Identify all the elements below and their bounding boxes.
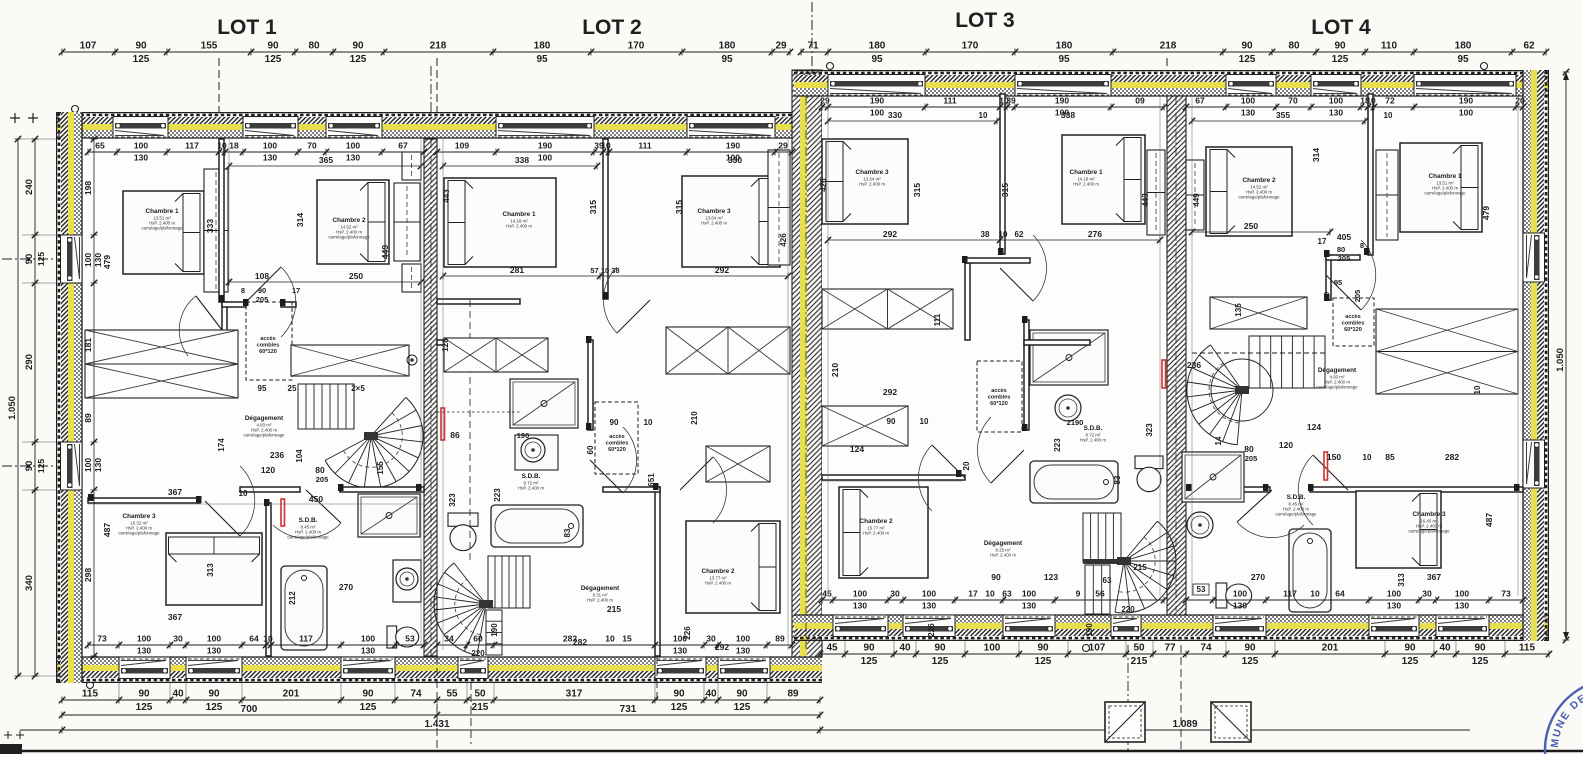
- svg-text:125: 125: [1332, 54, 1349, 65]
- svg-text:125: 125: [265, 54, 282, 65]
- svg-text:215: 215: [607, 604, 621, 614]
- svg-text:30: 30: [890, 589, 900, 599]
- svg-text:215: 215: [1131, 656, 1148, 667]
- svg-text:17: 17: [292, 286, 300, 295]
- svg-text:62: 62: [1523, 41, 1535, 52]
- svg-text:77: 77: [1164, 643, 1176, 654]
- svg-text:236: 236: [1187, 360, 1201, 370]
- svg-text:130: 130: [1241, 108, 1255, 118]
- svg-text:2×5: 2×5: [351, 384, 365, 393]
- svg-text:130: 130: [1022, 601, 1036, 611]
- svg-text:Chambre 2: Chambre 2: [701, 568, 734, 575]
- svg-text:130: 130: [1233, 601, 1247, 611]
- svg-text:90: 90: [1037, 643, 1049, 654]
- svg-text:30: 30: [706, 634, 716, 644]
- svg-text:carrelage/plafonnage: carrelage/plafonnage: [1238, 195, 1280, 200]
- svg-text:10: 10: [1473, 385, 1482, 394]
- svg-text:100: 100: [1241, 96, 1255, 106]
- svg-text:700: 700: [241, 704, 258, 715]
- svg-text:65: 65: [95, 141, 105, 151]
- svg-text:95: 95: [258, 384, 267, 393]
- svg-text:carrelage/plafonnage: carrelage/plafonnage: [1424, 191, 1466, 196]
- svg-text:carrelage/plafonnage: carrelage/plafonnage: [141, 226, 183, 231]
- svg-text:100: 100: [207, 634, 221, 644]
- svg-text:365: 365: [319, 155, 333, 165]
- svg-text:443: 443: [442, 189, 451, 203]
- svg-text:95: 95: [721, 54, 733, 65]
- svg-text:10: 10: [239, 489, 248, 498]
- svg-text:LOT 1: LOT 1: [217, 16, 277, 39]
- svg-text:HsP. 2.400 m: HsP. 2.400 m: [1080, 438, 1106, 443]
- svg-text:55: 55: [446, 689, 458, 700]
- svg-text:220: 220: [471, 649, 485, 658]
- svg-text:Chambre 3: Chambre 3: [122, 513, 155, 520]
- svg-text:125: 125: [1402, 656, 1419, 667]
- svg-text:80: 80: [315, 465, 325, 475]
- svg-text:17: 17: [968, 589, 978, 599]
- svg-text:50: 50: [474, 689, 486, 700]
- svg-text:90: 90: [863, 643, 875, 654]
- svg-text:1.089: 1.089: [1172, 719, 1197, 730]
- svg-text:108: 108: [255, 271, 269, 281]
- svg-text:130: 130: [1455, 601, 1469, 611]
- svg-text:130: 130: [673, 646, 687, 656]
- svg-text:210: 210: [690, 411, 699, 425]
- svg-text:90: 90: [1404, 643, 1416, 654]
- svg-text:S.D.B.: S.D.B.: [522, 473, 541, 480]
- svg-text:accès: accès: [260, 336, 276, 342]
- svg-text:carrelage/plafonnage: carrelage/plafonnage: [1275, 512, 1317, 517]
- svg-text:80: 80: [1288, 41, 1300, 52]
- svg-text:130: 130: [346, 153, 360, 163]
- svg-text:181: 181: [83, 338, 93, 352]
- svg-text:95: 95: [536, 54, 548, 65]
- svg-text:180: 180: [719, 41, 736, 52]
- svg-text:367: 367: [168, 487, 182, 497]
- svg-text:10: 10: [985, 589, 995, 599]
- svg-text:18: 18: [229, 141, 239, 151]
- svg-text:HsP. 2.400 m: HsP. 2.400 m: [518, 486, 544, 491]
- svg-text:367: 367: [168, 612, 182, 622]
- svg-text:190: 190: [1459, 96, 1473, 106]
- svg-text:80: 80: [1244, 444, 1254, 454]
- svg-text:125: 125: [36, 459, 46, 473]
- svg-text:215: 215: [472, 702, 489, 713]
- svg-text:117: 117: [185, 141, 199, 151]
- svg-text:72: 72: [1385, 96, 1395, 106]
- svg-text:100: 100: [361, 634, 375, 644]
- svg-text:90: 90: [887, 417, 896, 426]
- svg-text:63: 63: [1103, 576, 1112, 585]
- svg-text:30: 30: [173, 634, 183, 644]
- svg-text:25: 25: [288, 384, 297, 393]
- svg-text:95: 95: [871, 54, 883, 65]
- svg-text:210: 210: [830, 363, 840, 377]
- svg-text:combles: combles: [257, 343, 280, 349]
- svg-text:100: 100: [346, 141, 360, 151]
- svg-text:Chambre 1: Chambre 1: [1069, 169, 1102, 176]
- svg-text:150: 150: [1327, 452, 1341, 462]
- svg-text:270: 270: [339, 582, 353, 592]
- svg-text:180: 180: [1455, 41, 1472, 52]
- svg-text:HsP. 2.400 m: HsP. 2.400 m: [705, 581, 731, 586]
- svg-text:45: 45: [822, 589, 832, 599]
- svg-text:109: 109: [455, 141, 469, 151]
- svg-text:S.D.B.: S.D.B.: [299, 517, 318, 524]
- svg-text:combles: combles: [1342, 321, 1365, 327]
- svg-text:190: 190: [726, 141, 740, 151]
- svg-text:124: 124: [1307, 422, 1321, 432]
- svg-text:90: 90: [362, 689, 374, 700]
- svg-text:314: 314: [1311, 148, 1321, 162]
- svg-text:20: 20: [962, 461, 971, 470]
- svg-text:282: 282: [563, 634, 577, 644]
- svg-text:426: 426: [779, 233, 788, 247]
- svg-text:90: 90: [135, 41, 147, 52]
- svg-text:carrelage/plafonnage: carrelage/plafonnage: [1408, 529, 1450, 534]
- svg-text:95: 95: [1334, 278, 1342, 287]
- svg-text:Chambre 2: Chambre 2: [859, 518, 892, 525]
- svg-text:10: 10: [1363, 453, 1372, 462]
- svg-text:90: 90: [673, 689, 685, 700]
- svg-text:315: 315: [588, 200, 598, 214]
- svg-text:130: 130: [853, 601, 867, 611]
- svg-text:120: 120: [1279, 440, 1293, 450]
- svg-text:10: 10: [601, 141, 611, 151]
- svg-text:100: 100: [922, 589, 936, 599]
- svg-text:60*120: 60*120: [259, 349, 277, 355]
- svg-text:479: 479: [102, 255, 112, 269]
- svg-text:405: 405: [1337, 232, 1351, 242]
- svg-text:90: 90: [138, 689, 150, 700]
- svg-text:60*120: 60*120: [608, 447, 626, 453]
- svg-text:223: 223: [493, 488, 502, 502]
- svg-text:155: 155: [201, 41, 218, 52]
- svg-text:180: 180: [1056, 41, 1073, 52]
- svg-text:170: 170: [628, 41, 645, 52]
- svg-text:Chambre 1: Chambre 1: [502, 211, 535, 218]
- svg-text:29: 29: [820, 96, 830, 106]
- svg-text:317: 317: [566, 689, 583, 700]
- svg-text:80: 80: [1337, 245, 1345, 254]
- svg-text:S.D.B.: S.D.B.: [1084, 425, 1103, 432]
- svg-text:100: 100: [870, 108, 884, 118]
- svg-text:40: 40: [705, 689, 717, 700]
- svg-text:100: 100: [1022, 589, 1036, 599]
- svg-text:17: 17: [1318, 237, 1327, 246]
- svg-text:731: 731: [620, 704, 637, 715]
- svg-text:89: 89: [775, 634, 785, 644]
- svg-text:90: 90: [1334, 41, 1346, 52]
- svg-text:Chambre 3: Chambre 3: [1412, 511, 1445, 518]
- svg-text:190: 190: [517, 431, 530, 440]
- svg-text:155: 155: [376, 461, 385, 475]
- svg-text:487: 487: [1484, 513, 1494, 527]
- svg-text:Dégagement: Dégagement: [984, 540, 1023, 547]
- svg-text:60: 60: [586, 445, 595, 454]
- svg-text:218: 218: [1160, 41, 1177, 52]
- svg-text:226: 226: [927, 623, 936, 637]
- svg-text:111: 111: [943, 96, 957, 106]
- svg-text:53: 53: [405, 634, 415, 644]
- svg-text:201: 201: [1322, 643, 1339, 654]
- svg-text:90: 90: [1244, 643, 1256, 654]
- svg-text:73: 73: [1501, 589, 1511, 599]
- svg-text:10: 10: [920, 417, 929, 426]
- svg-text:combles: combles: [606, 441, 629, 447]
- svg-text:67: 67: [398, 141, 408, 151]
- svg-text:333: 333: [205, 219, 215, 233]
- svg-text:130: 130: [207, 646, 221, 656]
- svg-text:443: 443: [1141, 193, 1150, 207]
- svg-text:330: 330: [728, 155, 742, 165]
- svg-text:10: 10: [1366, 96, 1376, 106]
- svg-text:120: 120: [261, 465, 275, 475]
- svg-text:60*120: 60*120: [1344, 327, 1362, 333]
- svg-text:63: 63: [1002, 589, 1012, 599]
- svg-text:40: 40: [172, 689, 184, 700]
- svg-text:190: 190: [870, 96, 884, 106]
- svg-text:125: 125: [350, 54, 367, 65]
- svg-text:40: 40: [1439, 643, 1451, 654]
- svg-text:10: 10: [1384, 111, 1393, 120]
- svg-text:292: 292: [883, 387, 897, 397]
- svg-text:338: 338: [515, 155, 529, 165]
- svg-text:111: 111: [638, 141, 652, 151]
- svg-text:100: 100: [853, 589, 867, 599]
- svg-text:250: 250: [1244, 221, 1258, 231]
- svg-text:170: 170: [962, 41, 979, 52]
- svg-text:85: 85: [1385, 452, 1395, 462]
- svg-text:38: 38: [981, 230, 990, 239]
- svg-text:117: 117: [299, 634, 313, 644]
- svg-text:282: 282: [1445, 452, 1459, 462]
- svg-text:205: 205: [1245, 454, 1258, 463]
- svg-text:carrelage/plafonnage: carrelage/plafonnage: [243, 433, 285, 438]
- svg-text:190: 190: [1055, 96, 1069, 106]
- svg-text:Chambre 3: Chambre 3: [697, 208, 730, 215]
- svg-text:100: 100: [984, 643, 1001, 654]
- svg-text:HsP. 2.400 m: HsP. 2.400 m: [863, 531, 889, 536]
- svg-text:426: 426: [819, 178, 828, 192]
- svg-text:10: 10: [217, 141, 227, 151]
- svg-text:315: 315: [674, 200, 684, 214]
- svg-text:56: 56: [1095, 589, 1105, 599]
- svg-text:10: 10: [644, 418, 653, 427]
- svg-text:338: 338: [1061, 110, 1075, 120]
- svg-text:Chambre 1: Chambre 1: [145, 208, 178, 215]
- svg-text:315: 315: [912, 183, 922, 197]
- svg-text:90: 90: [1241, 41, 1253, 52]
- svg-text:80: 80: [308, 41, 320, 52]
- svg-text:HsP. 2.400 m: HsP. 2.400 m: [587, 598, 613, 603]
- svg-text:90: 90: [24, 254, 35, 265]
- svg-text:100: 100: [1329, 96, 1343, 106]
- svg-text:90: 90: [208, 689, 220, 700]
- svg-text:29: 29: [778, 141, 788, 151]
- svg-text:100: 100: [263, 141, 277, 151]
- svg-text:130: 130: [1387, 601, 1401, 611]
- svg-text:292: 292: [883, 229, 897, 239]
- svg-text:212: 212: [288, 591, 297, 605]
- svg-text:HsP. 2.400 m: HsP. 2.400 m: [1073, 182, 1099, 187]
- svg-text:130: 130: [93, 458, 103, 472]
- svg-text:64: 64: [249, 634, 259, 644]
- svg-text:174: 174: [217, 438, 226, 452]
- svg-text:130: 130: [736, 646, 750, 656]
- svg-text:125: 125: [36, 252, 46, 266]
- svg-text:340: 340: [24, 575, 35, 591]
- svg-text:290: 290: [24, 354, 35, 370]
- svg-text:292: 292: [715, 265, 729, 275]
- svg-text:100: 100: [83, 253, 93, 267]
- svg-text:90: 90: [934, 643, 946, 654]
- svg-text:29: 29: [775, 41, 787, 52]
- svg-text:70: 70: [307, 141, 317, 151]
- svg-text:130: 130: [263, 153, 277, 163]
- svg-text:39: 39: [1006, 96, 1016, 106]
- svg-text:355: 355: [1276, 110, 1290, 120]
- svg-text:HsP. 2.400 m: HsP. 2.400 m: [506, 224, 532, 229]
- svg-text:125: 125: [1472, 656, 1489, 667]
- svg-text:10: 10: [999, 230, 1008, 239]
- svg-text:205: 205: [1338, 254, 1351, 263]
- svg-text:LOT 3: LOT 3: [955, 9, 1015, 32]
- svg-text:8: 8: [1360, 241, 1364, 250]
- svg-text:S.D.B.: S.D.B.: [1287, 494, 1306, 501]
- svg-text:62: 62: [1015, 230, 1024, 239]
- svg-text:100: 100: [736, 634, 750, 644]
- svg-text:449: 449: [380, 245, 390, 259]
- svg-text:71: 71: [807, 41, 819, 52]
- svg-text:107: 107: [1089, 643, 1106, 654]
- svg-text:1.050: 1.050: [7, 396, 18, 420]
- svg-text:223: 223: [1053, 438, 1062, 452]
- svg-text:215: 215: [1133, 563, 1147, 572]
- svg-text:Dégagement: Dégagement: [581, 585, 620, 592]
- svg-text:125: 125: [360, 702, 377, 713]
- svg-text:100: 100: [1455, 589, 1469, 599]
- svg-text:60: 60: [473, 634, 483, 644]
- svg-text:50: 50: [1133, 643, 1145, 654]
- svg-text:125: 125: [932, 656, 949, 667]
- svg-text:125: 125: [1242, 656, 1259, 667]
- svg-text:90: 90: [1474, 643, 1486, 654]
- svg-text:323: 323: [448, 493, 457, 507]
- svg-text:10: 10: [979, 111, 988, 120]
- svg-text:124: 124: [850, 444, 864, 454]
- svg-text:115: 115: [1519, 643, 1536, 654]
- svg-text:73: 73: [97, 634, 107, 644]
- svg-text:83: 83: [1113, 475, 1122, 484]
- svg-text:90: 90: [352, 41, 364, 52]
- svg-text:carrelage/plafonnage: carrelage/plafonnage: [118, 531, 160, 536]
- svg-text:95: 95: [1457, 54, 1469, 65]
- svg-text:90: 90: [24, 461, 35, 472]
- svg-text:330: 330: [888, 110, 902, 120]
- svg-text:276: 276: [1088, 229, 1102, 239]
- svg-text:125: 125: [861, 656, 878, 667]
- svg-text:100: 100: [134, 141, 148, 151]
- svg-text:2190: 2190: [1067, 418, 1084, 427]
- svg-text:74: 74: [410, 689, 422, 700]
- svg-text:Chambre 1: Chambre 1: [1428, 173, 1461, 180]
- svg-text:combles: combles: [988, 395, 1011, 401]
- svg-text:125: 125: [1035, 656, 1052, 667]
- svg-text:205: 205: [256, 295, 269, 304]
- svg-text:100: 100: [1387, 589, 1401, 599]
- svg-text:125: 125: [136, 702, 153, 713]
- svg-text:190: 190: [1085, 623, 1094, 637]
- svg-text:270: 270: [1251, 572, 1265, 582]
- svg-text:128: 128: [441, 338, 450, 352]
- svg-text:accès: accès: [609, 434, 625, 440]
- svg-text:125: 125: [133, 54, 150, 65]
- svg-text:125: 125: [206, 702, 223, 713]
- svg-text:09: 09: [1135, 96, 1145, 106]
- svg-text:100: 100: [137, 634, 151, 644]
- svg-text:205: 205: [316, 475, 329, 484]
- svg-text:130: 130: [922, 601, 936, 611]
- svg-text:292: 292: [715, 642, 729, 652]
- svg-text:367: 367: [1427, 572, 1441, 582]
- svg-text:479: 479: [1481, 206, 1491, 220]
- svg-text:Dégagement: Dégagement: [245, 415, 284, 422]
- svg-text:45: 45: [826, 643, 838, 654]
- svg-text:accès: accès: [1345, 314, 1361, 320]
- svg-text:100: 100: [1233, 589, 1247, 599]
- svg-text:201: 201: [283, 689, 300, 700]
- svg-text:125: 125: [1239, 54, 1256, 65]
- svg-text:100: 100: [1459, 108, 1473, 118]
- svg-text:95: 95: [1058, 54, 1070, 65]
- svg-text:10: 10: [1310, 589, 1320, 599]
- svg-text:313: 313: [1397, 573, 1406, 587]
- svg-text:40: 40: [899, 643, 911, 654]
- svg-text:Chambre 2: Chambre 2: [332, 217, 365, 224]
- svg-text:100: 100: [673, 634, 687, 644]
- svg-text:220: 220: [1121, 605, 1135, 614]
- svg-text:LOT 4: LOT 4: [1311, 16, 1371, 39]
- svg-text:298: 298: [83, 568, 93, 582]
- svg-text:HsP. 2.400 m: HsP. 2.400 m: [859, 182, 885, 187]
- svg-text:20: 20: [1515, 96, 1525, 106]
- svg-text:53: 53: [1197, 585, 1206, 594]
- svg-text:313: 313: [206, 563, 215, 577]
- svg-text:30: 30: [1422, 589, 1432, 599]
- svg-text:60*120: 60*120: [990, 401, 1008, 407]
- svg-text:34: 34: [444, 634, 454, 644]
- svg-text:89: 89: [787, 689, 799, 700]
- svg-text:90: 90: [267, 41, 279, 52]
- svg-text:LOT 2: LOT 2: [582, 16, 642, 39]
- svg-text:115: 115: [82, 689, 99, 700]
- svg-text:236: 236: [270, 450, 284, 460]
- svg-text:130: 130: [134, 153, 148, 163]
- svg-text:Chambre 2: Chambre 2: [1242, 177, 1275, 184]
- svg-text:205: 205: [1353, 290, 1362, 303]
- svg-text:10: 10: [263, 634, 273, 644]
- svg-text:125: 125: [671, 702, 688, 713]
- svg-text:198: 198: [83, 181, 93, 195]
- svg-text:74: 74: [1200, 643, 1212, 654]
- svg-text:HsP. 2.400 m: HsP. 2.400 m: [990, 553, 1016, 558]
- svg-text:190: 190: [538, 141, 552, 151]
- svg-text:57 10 38: 57 10 38: [590, 266, 619, 275]
- svg-text:67: 67: [1195, 96, 1205, 106]
- svg-text:90: 90: [610, 418, 619, 427]
- svg-text:180: 180: [534, 41, 551, 52]
